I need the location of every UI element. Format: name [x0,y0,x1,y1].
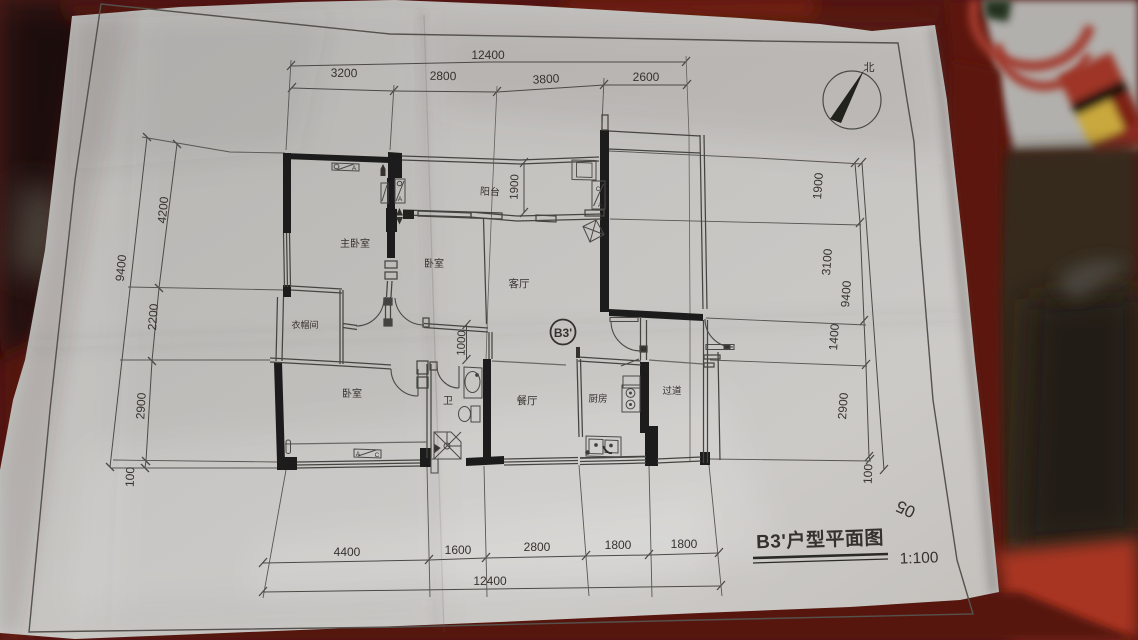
svg-text:餐厅: 餐厅 [517,394,538,407]
svg-text:卧室: 卧室 [342,387,362,400]
svg-text:2900: 2900 [835,392,851,420]
svg-text:2900: 2900 [133,392,148,420]
svg-text:C: C [375,452,380,459]
svg-text:4400: 4400 [334,545,361,559]
svg-text:衣帽间: 衣帽间 [291,319,318,330]
svg-text:1600: 1600 [445,543,472,557]
svg-text:主卧室: 主卧室 [340,237,370,250]
svg-text:卫: 卫 [443,396,453,407]
svg-text:厨房: 厨房 [588,393,607,405]
svg-text:卧室: 卧室 [424,257,444,270]
svg-text:北: 北 [864,61,875,74]
svg-text:4200: 4200 [155,196,172,224]
svg-text:1800: 1800 [605,538,632,552]
svg-text:3800: 3800 [532,71,560,86]
svg-text:1000: 1000 [456,330,469,356]
svg-text:12400: 12400 [471,48,505,62]
svg-text:A: A [398,196,403,203]
svg-text:1800: 1800 [671,537,698,551]
svg-text:1900: 1900 [509,174,522,200]
svg-text:阳台: 阳台 [480,184,501,198]
svg-text:12400: 12400 [473,574,507,588]
svg-text:客厅: 客厅 [509,277,530,290]
svg-text:9400: 9400 [113,254,130,282]
svg-text:B3': B3' [554,326,572,340]
svg-text:2200: 2200 [145,303,161,331]
svg-text:1:100: 1:100 [899,549,939,567]
svg-text:3100: 3100 [819,248,835,276]
svg-text:2800: 2800 [430,69,457,83]
svg-text:100: 100 [861,463,876,484]
svg-text:1900: 1900 [810,172,826,200]
svg-text:9400: 9400 [838,280,854,308]
svg-text:A: A [356,451,361,458]
svg-text:C: C [596,187,601,193]
svg-text:过道: 过道 [662,385,682,397]
svg-text:2600: 2600 [633,70,660,84]
svg-text:100: 100 [123,466,138,487]
svg-text:2800: 2800 [524,540,551,554]
svg-text:A: A [598,203,602,209]
svg-text:A: A [352,165,357,172]
svg-text:1400: 1400 [826,323,842,351]
svg-text:3200: 3200 [331,66,358,80]
